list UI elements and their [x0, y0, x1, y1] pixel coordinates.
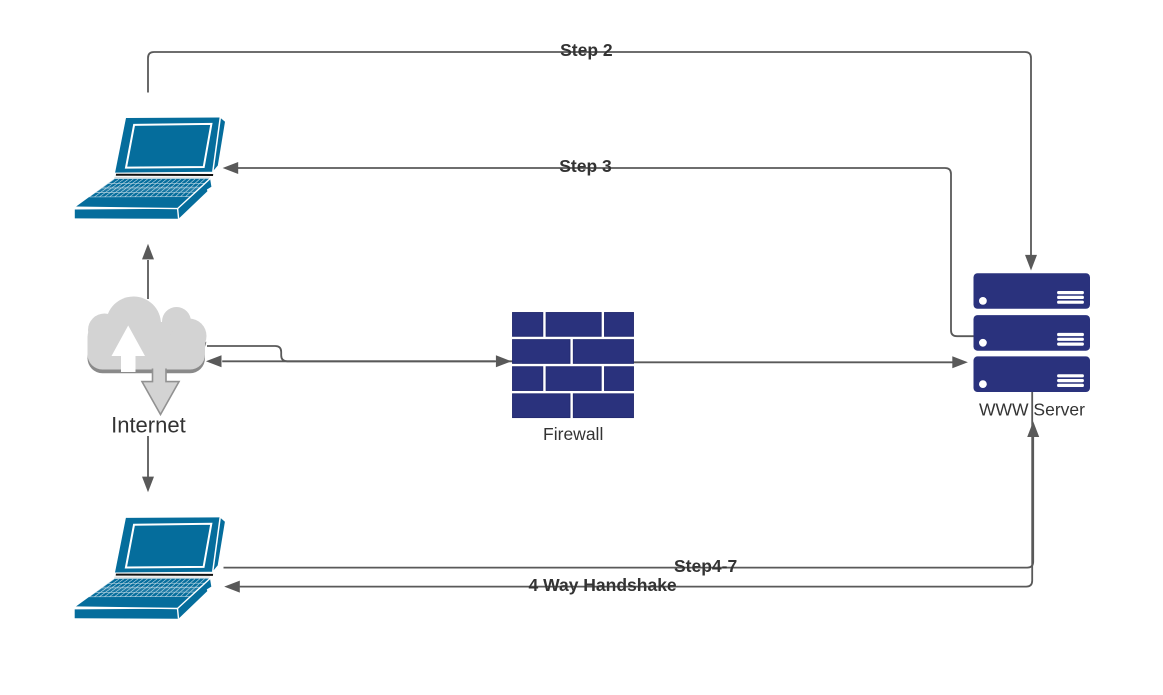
svg-text:Step4-7: Step4-7: [674, 556, 737, 576]
svg-text:Step 2: Step 2: [560, 40, 613, 60]
svg-text:Firewall: Firewall: [543, 424, 603, 444]
svg-text:Step 3: Step 3: [559, 156, 612, 176]
svg-text:Internet: Internet: [111, 413, 186, 438]
svg-text:4 Way Handshake: 4 Way Handshake: [529, 575, 677, 595]
svg-text:WWW Server: WWW Server: [979, 400, 1085, 420]
